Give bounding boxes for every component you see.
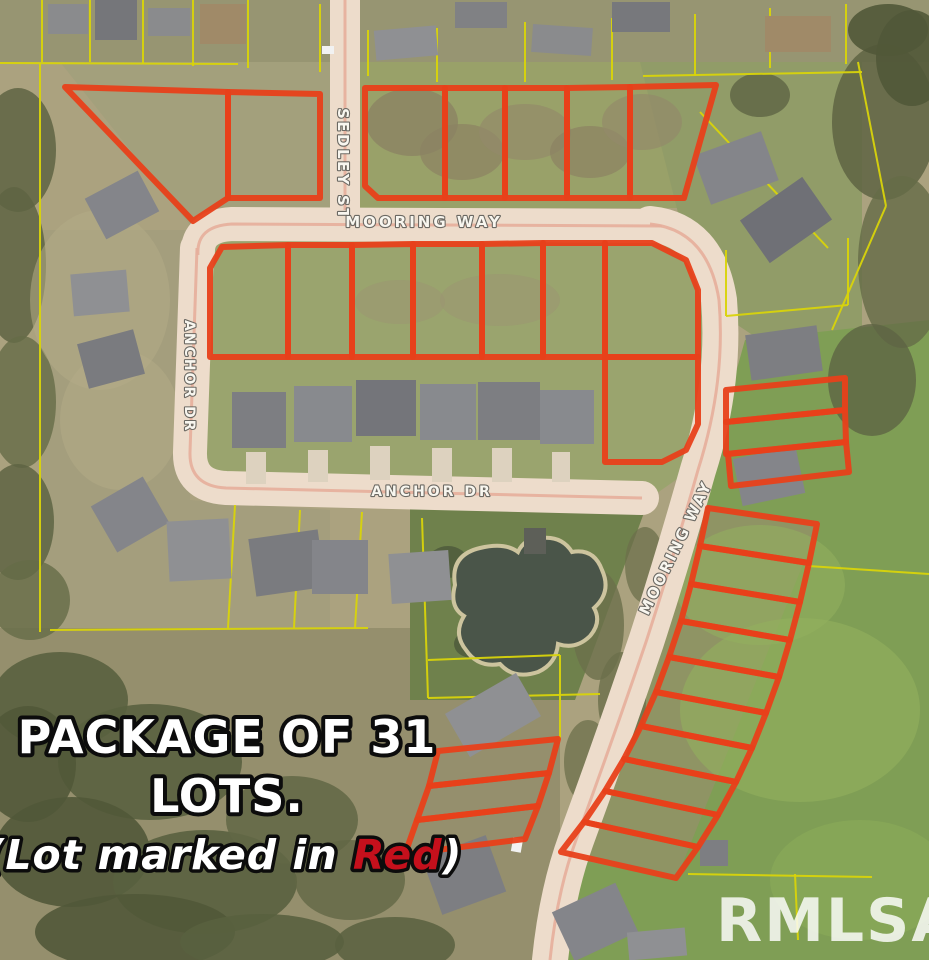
- building-roof: [70, 270, 129, 317]
- title-line-3: (Lot marked in Red): [0, 831, 462, 879]
- building-roof: [246, 452, 266, 484]
- building-roof: [700, 840, 728, 866]
- building-roof: [552, 452, 570, 482]
- title-line-2: LOTS.: [150, 769, 304, 823]
- building-roof: [627, 928, 687, 960]
- title-line-3-red-word: Red: [353, 831, 443, 879]
- terrain-zone-loop-grass: [190, 230, 716, 498]
- title-line-1: PACKAGE OF 31: [18, 710, 437, 764]
- building-roof: [200, 4, 246, 44]
- title-line-3-suffix: ): [441, 831, 463, 879]
- building-roof: [308, 450, 328, 482]
- building-roof: [540, 390, 594, 444]
- aerial-lot-map: SEDLEY STMOORING WAYANCHOR DRANCHOR DRMO…: [0, 0, 929, 960]
- building-roof: [312, 540, 368, 594]
- street-label-sedley-st: SEDLEY ST: [334, 108, 352, 221]
- building-roof: [232, 392, 286, 448]
- building-roof: [95, 0, 137, 40]
- building-roof: [455, 2, 507, 28]
- building-roof: [478, 382, 540, 440]
- building-roof: [166, 518, 231, 581]
- building-roof: [48, 4, 88, 34]
- building-roof: [370, 446, 390, 480]
- building-roof: [322, 46, 334, 54]
- building-roof: [531, 24, 593, 56]
- building-roof: [374, 25, 438, 60]
- street-label-anchor-dr-mid: ANCHOR DR: [371, 484, 493, 500]
- building-roof: [765, 16, 831, 52]
- building-roof: [388, 550, 451, 604]
- rmlsa-watermark: RMLSA: [716, 886, 929, 956]
- building-roof: [524, 528, 546, 554]
- title-line-3-prefix: (Lot marked in: [0, 831, 353, 879]
- vegetation-patch: [680, 618, 920, 802]
- vegetation-patch: [602, 94, 682, 150]
- vegetation-patch: [355, 280, 445, 324]
- building-roof: [612, 2, 670, 32]
- vegetation-patch: [730, 73, 790, 117]
- building-roof: [356, 380, 416, 436]
- building-roof: [294, 386, 352, 442]
- aerial-photo: SEDLEY STMOORING WAYANCHOR DRANCHOR DRMO…: [0, 0, 929, 960]
- street-label-mooring-way-top: MOORING WAY: [345, 213, 503, 231]
- street-label-anchor-dr-left: ANCHOR DR: [181, 320, 197, 433]
- building-roof: [148, 8, 190, 36]
- building-roof: [420, 384, 476, 440]
- building-roof: [432, 448, 452, 482]
- vegetation-patch: [848, 4, 928, 56]
- building-roof: [492, 448, 512, 482]
- parcel-line: [0, 63, 238, 64]
